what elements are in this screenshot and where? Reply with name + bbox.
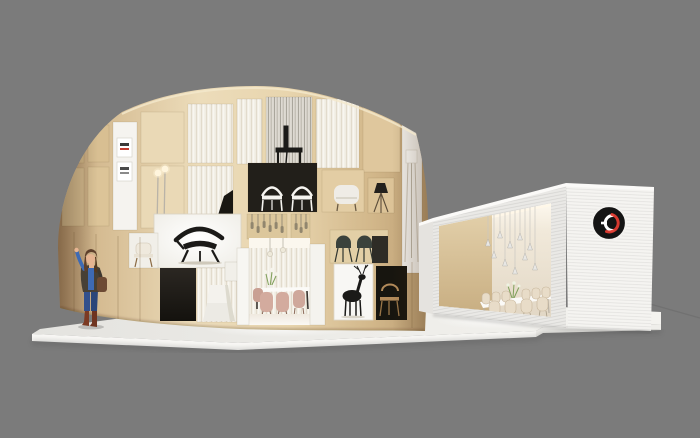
booth-render [0,0,700,438]
tripod-lamp-cell [368,178,394,213]
dark-stools-cell [330,230,388,263]
cream-chair-cell [129,233,158,268]
poster-panel [113,122,137,230]
shelf-cell [141,112,184,163]
curtain-cell [188,104,233,163]
dark-doorway [160,268,196,321]
white-armchair-cell [322,170,364,212]
box-left-end [419,219,433,314]
curtain-cell [237,99,262,164]
black-chair-cell [266,97,312,165]
white-chairs-on-black-cell [248,163,317,212]
curtain-cell [316,99,359,168]
deer-art-print [334,264,373,320]
rotunda-pavilion [56,84,430,335]
wainscot-panel [225,262,238,281]
door-jamb [237,248,249,325]
bottle-pendants-cell [247,214,310,239]
render-stage [0,0,700,438]
go-logo-icon [592,206,626,240]
hero-billboard-black-chair [154,214,241,268]
door-jamb [310,244,325,325]
dining-nook-opening [249,238,312,325]
